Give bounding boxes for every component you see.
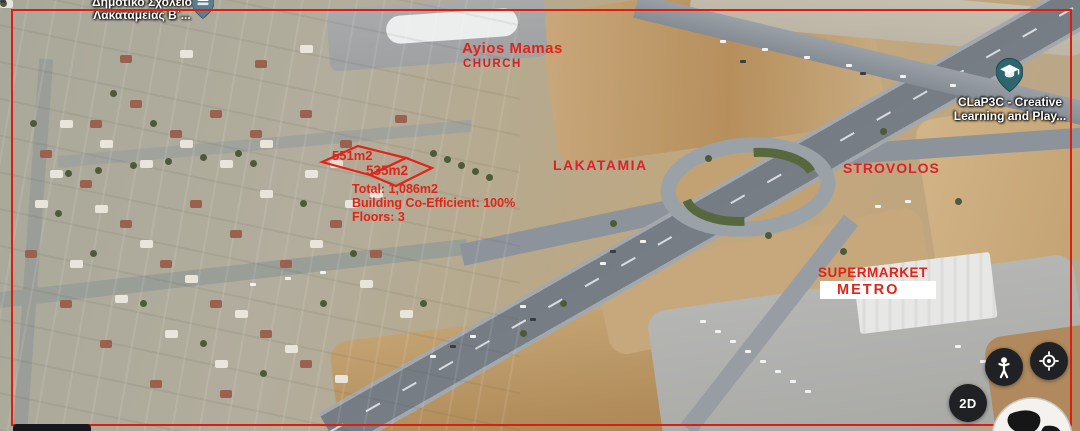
pegman-icon [993,355,1015,379]
globe-button[interactable] [990,396,1074,431]
google-earth-map[interactable]: Ayios Mamas CHURCH 551m2 535m2 Total: 1,… [0,0,1080,431]
car-scatter-dark [0,0,6,3]
bottom-black-bar [13,424,91,431]
place-label-learning-center[interactable]: CLaP3C - Creative Learning and Play... [932,96,1080,123]
my-location-icon [1038,350,1060,372]
annotation-district-lakatamia: LAKATAMIA [553,157,648,173]
my-location-button[interactable] [1030,342,1068,380]
field-patch [914,96,1080,280]
annotation-supermarket: SUPERMARKET [818,265,928,280]
urban-texture [0,0,520,431]
place-label-line: Learning and Play... [932,110,1080,124]
globe-icon [990,396,1074,431]
graduation-cap-pin-icon[interactable] [996,58,1023,92]
annotation-plot-a-area: 551m2 [332,148,372,163]
satellite-imagery [0,0,1080,431]
annotation-total-area: Total: 1,086m2 [352,182,438,196]
annotation-building-coefficient: Building Co-Efficient: 100% [352,196,515,210]
school-pin-icon[interactable] [192,0,214,19]
annotation-district-strovolos: STROVOLOS [843,160,940,176]
2d-mode-button[interactable]: 2D [949,384,987,422]
annotation-church-name: Ayios Mamas [462,40,563,57]
annotation-floors: Floors: 3 [352,210,405,224]
pegman-button[interactable] [985,348,1023,386]
annotation-church-type: CHURCH [463,58,522,70]
annotation-metro: METRO [837,282,899,298]
place-label-line: CLaP3C - Creative [932,96,1080,110]
annotation-plot-b-area: 535m2 [366,163,408,178]
